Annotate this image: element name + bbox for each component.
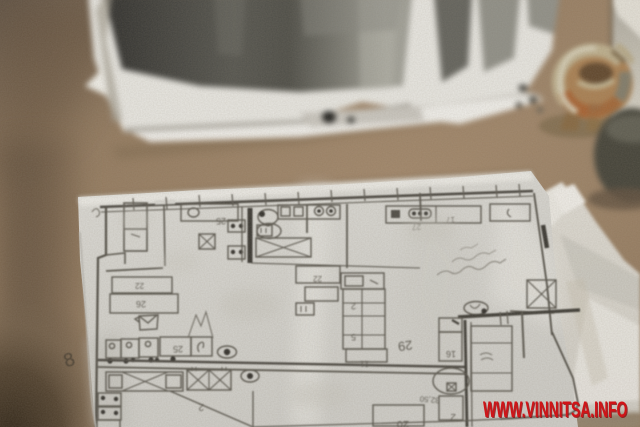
svg-text:WWW.VINNITSA.INFO: WWW.VINNITSA.INFO	[483, 397, 627, 422]
